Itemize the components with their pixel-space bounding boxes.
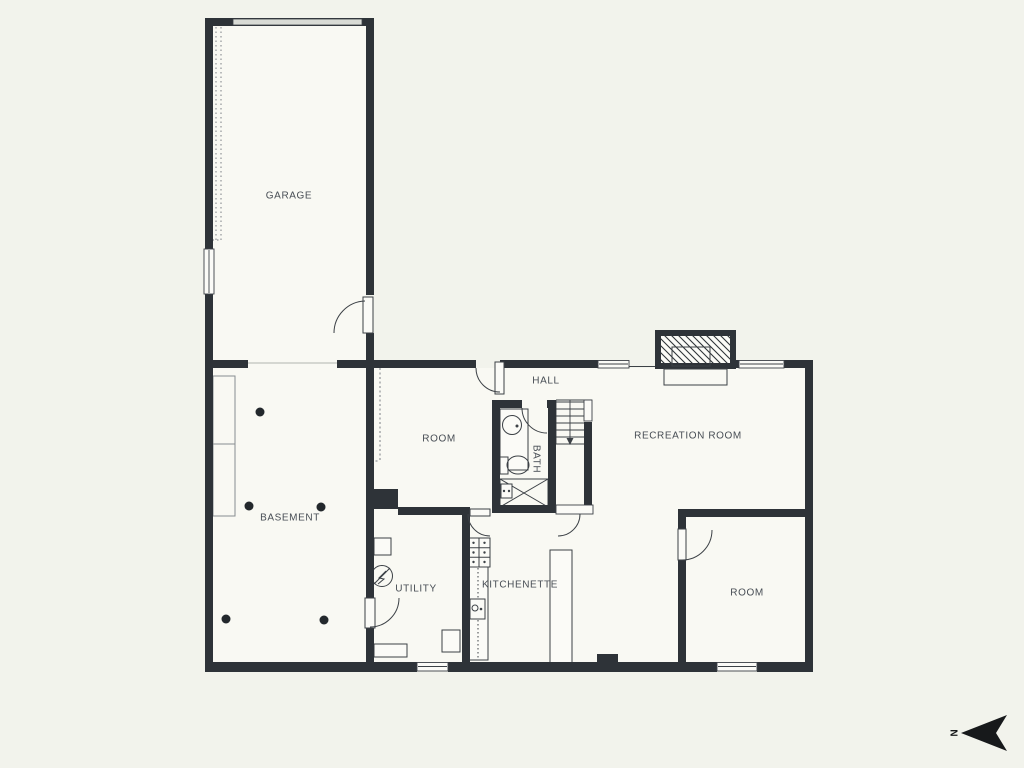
window [717, 663, 757, 672]
support-column [222, 615, 231, 624]
counter [550, 550, 572, 663]
hearth [664, 369, 727, 385]
appliance [374, 644, 407, 657]
appliance [374, 538, 391, 555]
north-label: N [948, 729, 959, 736]
window [417, 663, 448, 672]
utility-label: UTILITY [395, 584, 436, 595]
pier [597, 654, 618, 663]
bath-label: BATH [531, 445, 542, 473]
support-column [320, 616, 329, 625]
basement-label: BASEMENT [260, 513, 320, 524]
north-arrow-icon: N [948, 715, 1008, 751]
chimney-block [366, 489, 398, 509]
appliance [442, 630, 460, 652]
shelf [213, 376, 235, 516]
garage-label: GARAGE [266, 191, 312, 202]
window [598, 361, 629, 369]
floor-plan: N GARAGE BASEMENT HALL ROOM BATH RECREAT… [0, 0, 1024, 768]
sink-tap-dot [516, 425, 519, 428]
garage-door [233, 19, 362, 25]
fireplace-icon [658, 333, 733, 385]
support-column [317, 503, 326, 512]
lower-room-label: ROOM [730, 588, 764, 599]
window [204, 249, 214, 294]
kitchenette-label: KITCHENETTE [482, 580, 558, 591]
stair-rail [584, 400, 592, 421]
support-column [256, 408, 265, 417]
stove-icon [468, 538, 490, 567]
floor-plan-drawing: N [0, 0, 1024, 768]
hall-label: HALL [532, 376, 559, 387]
recreation-room-label: RECREATION ROOM [634, 431, 742, 442]
support-column [245, 502, 254, 511]
middle-room-label: ROOM [422, 434, 456, 445]
window [739, 361, 784, 369]
